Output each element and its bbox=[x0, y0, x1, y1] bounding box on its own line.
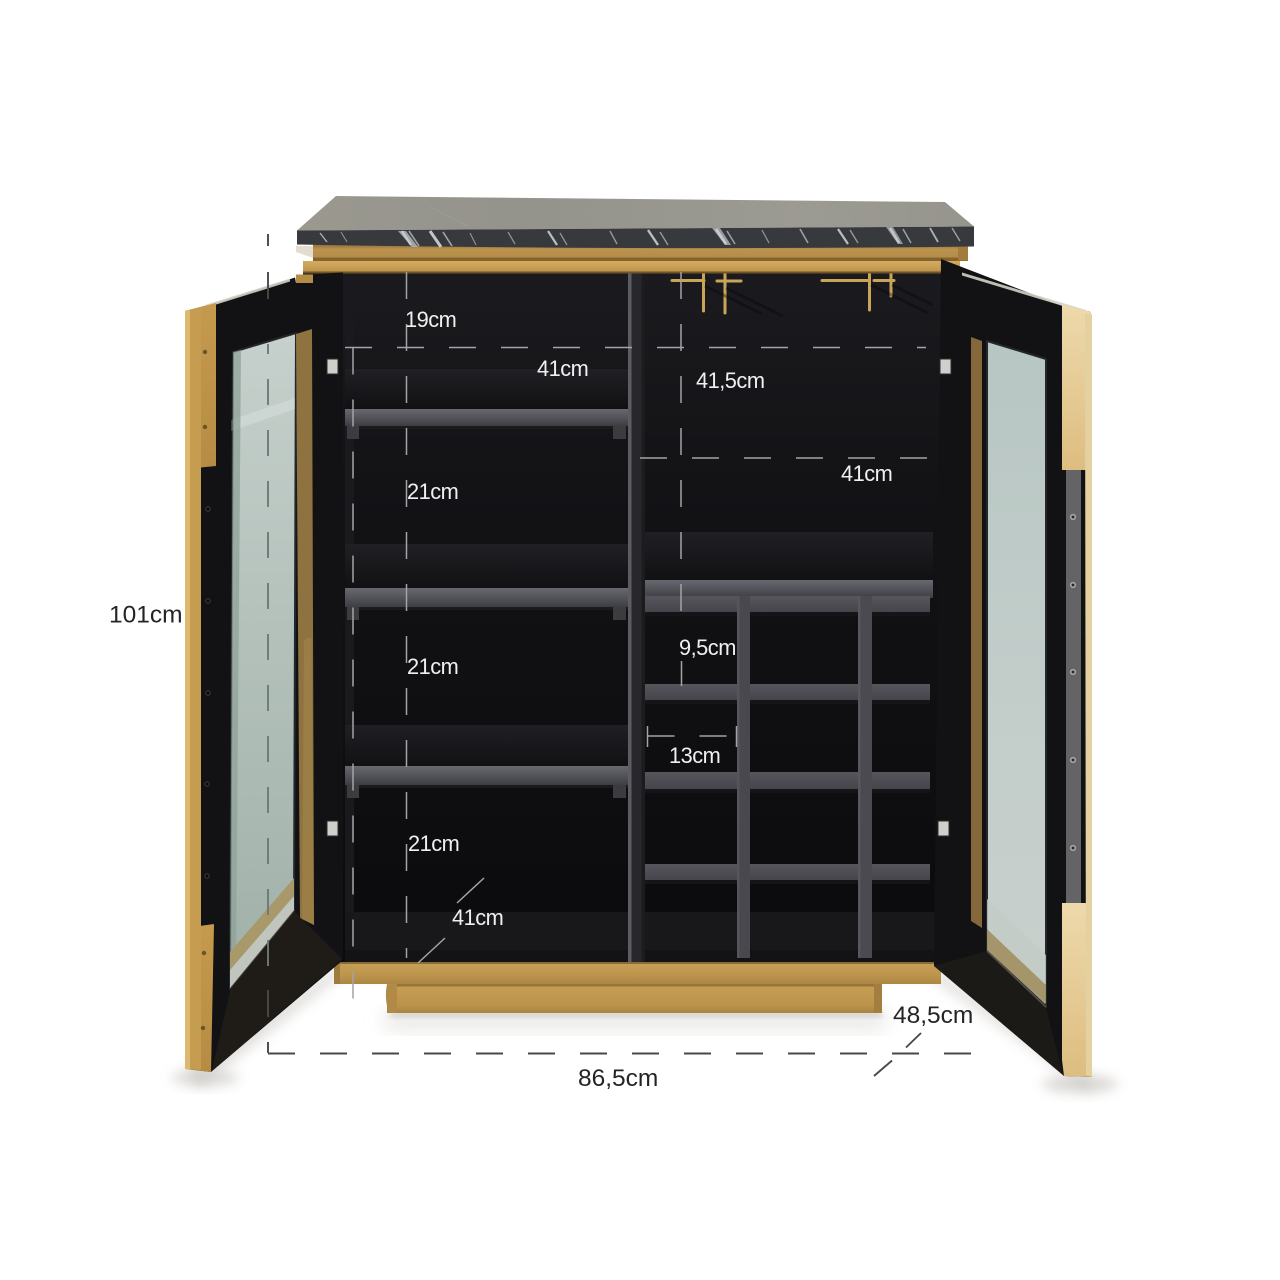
svg-text:21cm: 21cm bbox=[407, 654, 458, 679]
svg-text:13cm: 13cm bbox=[669, 743, 720, 768]
svg-text:9,5cm: 9,5cm bbox=[679, 635, 736, 660]
svg-text:41cm: 41cm bbox=[537, 356, 588, 381]
svg-text:21cm: 21cm bbox=[407, 479, 458, 504]
svg-text:48,5cm: 48,5cm bbox=[893, 1002, 973, 1029]
svg-text:86,5cm: 86,5cm bbox=[578, 1065, 658, 1092]
svg-text:101cm: 101cm bbox=[109, 602, 183, 629]
svg-text:41cm: 41cm bbox=[452, 905, 503, 930]
svg-text:41cm: 41cm bbox=[841, 461, 892, 486]
svg-text:19cm: 19cm bbox=[405, 307, 456, 332]
svg-text:41,5cm: 41,5cm bbox=[696, 368, 764, 393]
svg-text:21cm: 21cm bbox=[408, 831, 459, 856]
